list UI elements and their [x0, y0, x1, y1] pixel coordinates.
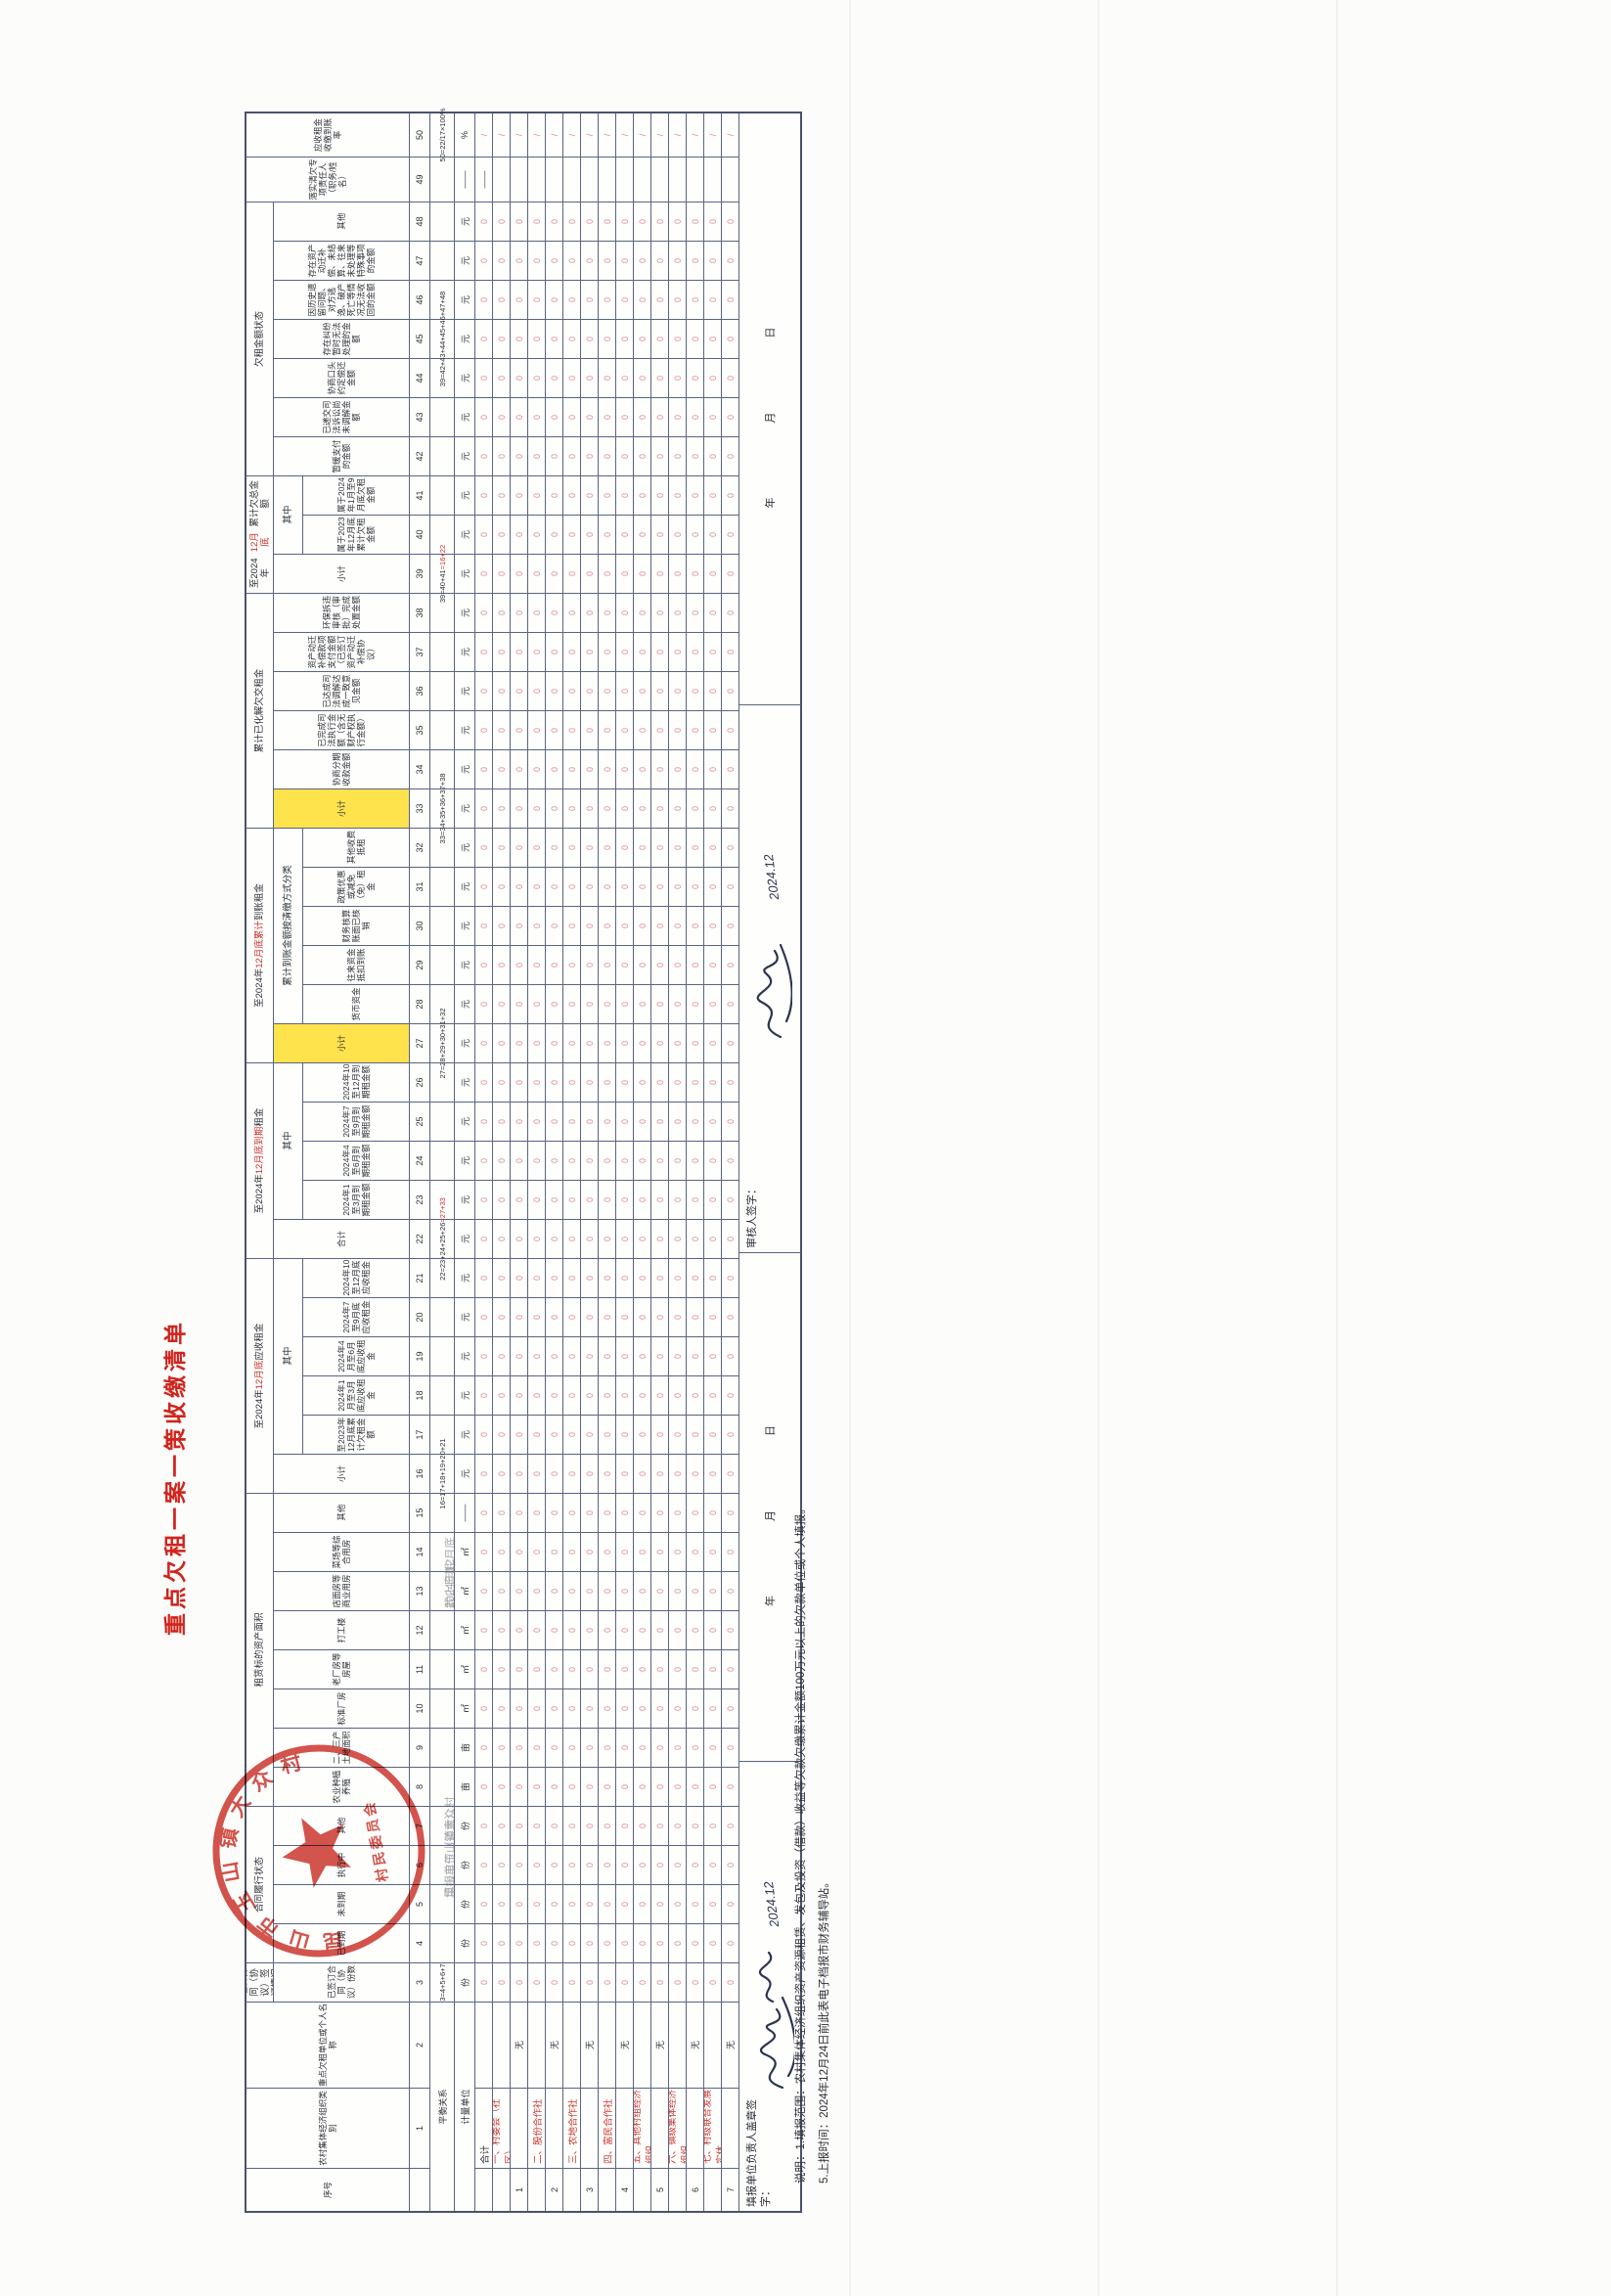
data-cell-49 [687, 157, 703, 202]
data-cell-33: 0 [722, 788, 738, 828]
table-row: 五、其他村组经济组织000000000000000000000000000000… [634, 113, 651, 2211]
data-cell-12: 0 [634, 1610, 650, 1649]
data-cell-33: 0 [493, 788, 510, 828]
data-cell-35: 0 [599, 710, 615, 749]
col-number-18: 18 [410, 1375, 429, 1415]
data-cell-20: 0 [563, 1297, 580, 1336]
col-number-14: 14 [410, 1532, 429, 1571]
formula-cell-14 [430, 1532, 454, 1571]
col-number-27: 27 [410, 1023, 429, 1062]
data-cell-13: 0 [634, 1571, 650, 1610]
col-header-48: 其他 [274, 202, 409, 241]
formula-cell-25 [430, 1102, 454, 1141]
unit-cell-25: 元 [455, 1102, 474, 1141]
data-cell-21: 0 [616, 1258, 633, 1297]
data-cell-42: 0 [511, 436, 527, 475]
data-cell-8: 0 [511, 1767, 527, 1806]
data-cell-37: 0 [581, 632, 598, 671]
data-cell-36: 0 [493, 671, 510, 710]
data-cell-31: 0 [528, 867, 545, 906]
data-cell-36: 0 [599, 671, 615, 710]
data-cell-39: 0 [475, 554, 492, 593]
data-cell-38: 0 [581, 593, 598, 632]
formula-cell-49 [430, 157, 454, 202]
data-cell-34: 0 [563, 749, 580, 788]
data-cell-47: 0 [722, 241, 738, 280]
data-cell-25: 0 [546, 1102, 562, 1141]
col-header-19: 2024年4月至6月底应收租金 [303, 1336, 409, 1375]
data-cell-43: 0 [651, 397, 668, 436]
col-header-25: 2024年7至9月到期租金额 [303, 1102, 409, 1141]
data-cell-3: 0 [651, 1962, 668, 2002]
data-cell-43: 0 [599, 397, 615, 436]
data-cell-4: 0 [599, 1923, 615, 1962]
data-cell-41: 0 [687, 475, 703, 515]
data-cell-19: 0 [493, 1336, 510, 1375]
data-cell-46: 0 [475, 280, 492, 319]
data-cell-23: 0 [651, 1180, 668, 1219]
data-cell-43: 0 [704, 397, 721, 436]
data-cell-21: 0 [704, 1258, 721, 1297]
note-line-1: 说明：1.填报范围：农村集体经济组织资产资源租赁、发包及投资（借款）收益等欠款欠… [792, 1503, 808, 2183]
data-cell-27: 0 [493, 1023, 510, 1062]
col-header-47: 存在资产动迁补偿、未结算、往来未处理等特殊事项的金额 [274, 241, 409, 280]
data-cell-25: 0 [687, 1102, 703, 1141]
data-cell-24: 0 [651, 1141, 668, 1180]
formula-cell-34 [430, 749, 454, 788]
data-cell-7: 0 [493, 1806, 510, 1845]
data-cell-50: / [563, 113, 580, 157]
data-cell-13: 0 [669, 1571, 686, 1610]
data-cell-32: 0 [651, 828, 668, 867]
data-cell-17: 0 [493, 1415, 510, 1454]
data-cell-25: 0 [493, 1102, 510, 1141]
unit-cell-41: 元 [455, 475, 474, 515]
data-cell-29: 0 [563, 945, 580, 984]
data-cell-42: 0 [651, 436, 668, 475]
data-cell-19: 0 [704, 1336, 721, 1375]
data-cell-28: 0 [722, 984, 738, 1023]
data-cell-21: 0 [546, 1258, 562, 1297]
table-row: 三、农地合作社000000000000000000000000000000000… [563, 113, 581, 2211]
col-header-36: 已达成司法调解达成一致意见金额 [274, 671, 409, 710]
data-cell-31: 0 [616, 867, 633, 906]
col-header-sn: 序号 [246, 2168, 409, 2211]
data-cell-7: 0 [634, 1806, 650, 1845]
data-cell-29: 0 [493, 945, 510, 984]
data-cell-14: 0 [493, 1532, 510, 1571]
data-cell-39: 0 [493, 554, 510, 593]
data-cell-47: 0 [563, 241, 580, 280]
data-cell-21: 0 [634, 1258, 650, 1297]
data-cell-50: / [493, 113, 510, 157]
data-cell-47: 0 [528, 241, 545, 280]
col-number-sn [410, 2168, 429, 2211]
col-number-37: 37 [410, 632, 429, 671]
data-cell-32: 0 [581, 828, 598, 867]
row-sn [475, 2168, 492, 2211]
data-cell-36: 0 [511, 671, 527, 710]
data-cell-16: 0 [528, 1454, 545, 1493]
data-cell-27: 0 [511, 1023, 527, 1062]
data-cell-32: 0 [511, 828, 527, 867]
data-cell-5: 0 [528, 1884, 545, 1923]
data-cell-27: 0 [563, 1023, 580, 1062]
formula-cell-27: 27=28+29+30+31+32 [430, 1023, 454, 1062]
data-cell-14: 0 [581, 1532, 598, 1571]
data-cell-21: 0 [581, 1258, 598, 1297]
data-cell-22: 0 [528, 1219, 545, 1258]
data-cell-42: 0 [669, 436, 686, 475]
data-cell-41: 0 [493, 475, 510, 515]
data-cell-5: 0 [599, 1884, 615, 1923]
data-cell-19: 0 [722, 1336, 738, 1375]
data-cell-21: 0 [528, 1258, 545, 1297]
official-seal-stamp: 昆山市玉山镇大众村 村民委员会 [174, 1706, 465, 1997]
data-cell-9: 0 [704, 1728, 721, 1767]
data-cell-8: 0 [669, 1767, 686, 1806]
data-cell-4: 0 [581, 1923, 598, 1962]
data-cell-24: 0 [581, 1141, 598, 1180]
data-cell-22: 0 [634, 1219, 650, 1258]
data-cell-20: 0 [634, 1297, 650, 1336]
data-cell-44: 0 [511, 358, 527, 397]
data-cell-43: 0 [687, 397, 703, 436]
data-cell-19: 0 [616, 1336, 633, 1375]
col-header-23: 2024年1至3月到期租金额 [303, 1180, 409, 1219]
data-cell-3: 0 [704, 1962, 721, 2002]
unit-cell-36: 元 [455, 671, 474, 710]
col-number-31: 31 [410, 867, 429, 906]
data-cell-26: 0 [493, 1062, 510, 1102]
data-cell-28: 0 [528, 984, 545, 1023]
data-cell-4: 0 [528, 1923, 545, 1962]
unit-cell-9: 亩 [455, 1728, 474, 1767]
formula-cell-40 [430, 515, 454, 554]
data-cell-7: 0 [616, 1806, 633, 1845]
data-cell-45: 0 [616, 319, 633, 358]
data-cell-48: 0 [616, 202, 633, 241]
col-number-43: 43 [410, 397, 429, 436]
row-label: 五、其他村组经济组织 [634, 2088, 650, 2168]
data-cell-19: 0 [475, 1336, 492, 1375]
data-cell-10: 0 [704, 1688, 721, 1728]
row-sn [493, 2168, 510, 2211]
col-subgroup-label: 其中 [274, 1062, 303, 1219]
data-cell-24: 0 [475, 1141, 492, 1180]
unit-cell-46: 元 [455, 280, 474, 319]
unit-cell-8: 亩 [455, 1767, 474, 1806]
data-cell-28: 0 [599, 984, 615, 1023]
data-cell-28: 0 [563, 984, 580, 1023]
col-number-3: 3 [410, 1962, 429, 2002]
data-cell-31: 0 [563, 867, 580, 906]
data-cell-43: 0 [669, 397, 686, 436]
col-group-8: 欠租金额状态暂缓支付的金额已递交司法诉讼尚未调解金额协商口头约定偿还金额存在纠纷… [246, 202, 409, 475]
formula-cell-37 [430, 632, 454, 671]
col-number-32: 32 [410, 828, 429, 867]
data-cell-45: 0 [687, 319, 703, 358]
data-cell-26: 0 [581, 1062, 598, 1102]
col-group-label: 至2024年12月底应收租金 [246, 1259, 274, 1493]
data-cell-19: 0 [528, 1336, 545, 1375]
data-cell-11: 0 [722, 1649, 738, 1688]
data-cell-10: 0 [669, 1688, 686, 1728]
data-cell-42: 0 [722, 436, 738, 475]
data-cell-44: 0 [563, 358, 580, 397]
formula-cell-30 [430, 906, 454, 945]
data-cell-46: 0 [634, 280, 650, 319]
data-cell-43: 0 [634, 397, 650, 436]
unit-row: 计量单位份份份份份亩亩㎡㎡㎡㎡㎡——元元元元元元元元元元元元元元元元元元元元元元… [455, 113, 475, 2211]
col-number-15: 15 [410, 1493, 429, 1532]
data-cell-32: 0 [599, 828, 615, 867]
col-subgroup: 累计到账金额按清缴方式分类货币资金往来资金抵扣到账财务核算账面已核销政策优惠或减… [274, 828, 409, 1023]
data-cell-49 [651, 157, 668, 202]
data-cell-12: 0 [599, 1610, 615, 1649]
data-cell-6: 0 [599, 1845, 615, 1884]
col-group-children: 小计其中属于2023年12月底累计欠租金额属于2024年1月至9月底欠租金额 [274, 476, 409, 593]
formula-cell-28 [430, 984, 454, 1023]
data-cell-26: 0 [651, 1062, 668, 1102]
data-cell-41: 0 [563, 475, 580, 515]
data-cell-31: 0 [704, 867, 721, 906]
data-cell-49 [546, 157, 562, 202]
data-cell-36: 0 [687, 671, 703, 710]
unit-cell-24: 元 [455, 1141, 474, 1180]
data-cell-27: 0 [669, 1023, 686, 1062]
data-cell-11: 0 [616, 1649, 633, 1688]
data-cell-20: 0 [616, 1297, 633, 1336]
data-cell-37: 0 [722, 632, 738, 671]
data-cell-45: 0 [528, 319, 545, 358]
data-cell-12: 0 [651, 1610, 668, 1649]
data-cell-4: 0 [563, 1923, 580, 1962]
data-cell-17: 0 [528, 1415, 545, 1454]
data-cell-45: 0 [511, 319, 527, 358]
formula-cell-47 [430, 241, 454, 280]
data-cell-22: 0 [563, 1219, 580, 1258]
data-cell-40: 0 [651, 515, 668, 554]
data-cell-22: 0 [511, 1219, 527, 1258]
col-subgroup: 其中2024年1至3月到期租金额2024年4至6月到期租金额2024年7至9月到… [274, 1062, 409, 1219]
formula-cell-9 [430, 1728, 454, 1767]
data-cell-13: 0 [599, 1571, 615, 1610]
col-number-40: 40 [410, 515, 429, 554]
col-group-label: 累计已化解欠交租金 [246, 594, 274, 828]
data-cell-34: 0 [634, 749, 650, 788]
data-cell-25: 0 [528, 1102, 545, 1141]
data-cell-17: 0 [669, 1415, 686, 1454]
data-cell-38: 0 [546, 593, 562, 632]
data-cell-15: 0 [651, 1493, 668, 1532]
data-cell-29: 0 [687, 945, 703, 984]
row-label: 七、村级联合发展实体 [704, 2088, 721, 2168]
data-cell-36: 0 [581, 671, 598, 710]
row-label [722, 2088, 738, 2168]
data-cell-30: 0 [669, 906, 686, 945]
data-cell-16: 0 [493, 1454, 510, 1493]
table-row: 一、村委会（社区）0000000000000000000000000000000… [493, 113, 511, 2211]
data-cell-43: 0 [563, 397, 580, 436]
data-cell-23: 0 [511, 1180, 527, 1219]
row-sn [528, 2168, 545, 2211]
data-cell-40: 0 [722, 515, 738, 554]
data-cell-11: 0 [493, 1649, 510, 1688]
data-cell-33: 0 [475, 788, 492, 828]
data-cell-11: 0 [581, 1649, 598, 1688]
unit-row-label: 计量单位 [455, 2002, 474, 2211]
data-cell-23: 0 [581, 1180, 598, 1219]
data-cell-38: 0 [616, 593, 633, 632]
data-cell-11: 0 [511, 1649, 527, 1688]
col-group-7: 至2024年12月底累计欠总金额小计其中属于2023年12月底累计欠租金额属于2… [246, 475, 409, 593]
data-cell-14: 0 [599, 1532, 615, 1571]
row-name [704, 2002, 721, 2088]
data-cell-40: 0 [493, 515, 510, 554]
data-cell-6: 0 [493, 1845, 510, 1884]
data-cell-44: 0 [704, 358, 721, 397]
col-group-children: 小计其中至2023年12月底累计欠租金额2024年1月至3月底应收租金2024年… [274, 1259, 409, 1493]
data-cell-23: 0 [687, 1180, 703, 1219]
data-cell-42: 0 [616, 436, 633, 475]
data-cell-42: 0 [493, 436, 510, 475]
data-cell-35: 0 [651, 710, 668, 749]
data-cell-45: 0 [599, 319, 615, 358]
data-cell-48: 0 [475, 202, 492, 241]
data-cell-49 [634, 157, 650, 202]
data-cell-24: 0 [616, 1141, 633, 1180]
unit-cell-22: 元 [455, 1219, 474, 1258]
data-cell-35: 0 [475, 710, 492, 749]
data-cell-16: 0 [687, 1454, 703, 1493]
data-cell-12: 0 [563, 1610, 580, 1649]
unit-cell-37: 元 [455, 632, 474, 671]
row-name: 无 [511, 2002, 527, 2088]
col-group-children: 小计协商分期收款金额已完成司法执行金额（含无财产权执行金额）已达成司法调解达成一… [274, 594, 409, 828]
col-number-35: 35 [410, 710, 429, 749]
data-cell-48: 0 [704, 202, 721, 241]
data-cell-45: 0 [493, 319, 510, 358]
unit-cell-12: ㎡ [455, 1610, 474, 1649]
unit-cell-30: 元 [455, 906, 474, 945]
col-header-31: 政策优惠或减免（免）租金 [303, 867, 409, 906]
data-cell-3: 0 [546, 1962, 562, 2002]
col-header-11: 老厂房等房屋 [274, 1649, 409, 1688]
data-cell-42: 0 [546, 436, 562, 475]
data-cell-12: 0 [669, 1610, 686, 1649]
unit-cell-18: 元 [455, 1375, 474, 1415]
data-cell-34: 0 [581, 749, 598, 788]
data-cell-28: 0 [511, 984, 527, 1023]
data-cell-4: 0 [634, 1923, 650, 1962]
data-cell-50: / [511, 113, 527, 157]
col-header-20: 2024年7至9月底应收租金 [303, 1297, 409, 1336]
data-cell-22: 0 [704, 1219, 721, 1258]
row-label: 二、股份合作社 [528, 2088, 545, 2168]
formula-cell-22: 22=23+24+25+26=27+33 [430, 1219, 454, 1258]
data-cell-13: 0 [722, 1571, 738, 1610]
row-label [581, 2088, 598, 2168]
data-cell-29: 0 [669, 945, 686, 984]
col-header-35: 已完成司法执行金额（含无财产权执行金额） [274, 710, 409, 749]
data-cell-5: 0 [669, 1884, 686, 1923]
unit-cell-31: 元 [455, 867, 474, 906]
row-name: 无 [546, 2002, 562, 2088]
data-cell-46: 0 [581, 280, 598, 319]
data-cell-16: 0 [475, 1454, 492, 1493]
data-cell-4: 0 [493, 1923, 510, 1962]
data-cell-33: 0 [528, 788, 545, 828]
row-name: 无 [651, 2002, 668, 2088]
data-cell-26: 0 [669, 1062, 686, 1102]
data-cell-36: 0 [722, 671, 738, 710]
formula-cell-42 [430, 436, 454, 475]
data-cell-10: 0 [687, 1688, 703, 1728]
data-cell-34: 0 [687, 749, 703, 788]
data-cell-16: 0 [546, 1454, 562, 1493]
signature-cell: 审核人签字：2024.12 [739, 704, 800, 1252]
data-cell-37: 0 [546, 632, 562, 671]
data-cell-36: 0 [528, 671, 545, 710]
data-cell-43: 0 [546, 397, 562, 436]
col-number-cat: 1 [410, 2088, 429, 2168]
data-cell-29: 0 [599, 945, 615, 984]
unit-cell-17: 元 [455, 1415, 474, 1454]
col-group-6: 累计已化解欠交租金小计协商分期收款金额已完成司法执行金额（含无财产权执行金额）已… [246, 593, 409, 828]
data-cell-32: 0 [616, 828, 633, 867]
data-cell-48: 0 [651, 202, 668, 241]
data-cell-19: 0 [634, 1336, 650, 1375]
data-cell-48: 0 [546, 202, 562, 241]
col-header-28: 货币资金 [303, 984, 409, 1023]
data-cell-37: 0 [704, 632, 721, 671]
data-cell-49 [669, 157, 686, 202]
col-group-4: 至2024年12月底到期租金合计其中2024年1至3月到期租金额2024年4至6… [246, 1062, 409, 1258]
data-cell-35: 0 [687, 710, 703, 749]
row-label: 合计 [475, 2088, 492, 2168]
data-cell-41: 0 [511, 475, 527, 515]
data-cell-25: 0 [616, 1102, 633, 1141]
data-cell-15: 0 [563, 1493, 580, 1532]
col-subgroup: 其中属于2023年12月底累计欠租金额属于2024年1月至9月底欠租金额 [274, 475, 409, 554]
data-cell-46: 0 [722, 280, 738, 319]
data-cell-13: 0 [687, 1571, 703, 1610]
data-cell-20: 0 [475, 1297, 492, 1336]
col-group-5: 至2024年12月底累计到账租金小计累计到账金额按清缴方式分类货币资金往来资金抵… [246, 828, 409, 1062]
data-cell-27: 0 [599, 1023, 615, 1062]
data-cell-19: 0 [546, 1336, 562, 1375]
data-cell-17: 0 [687, 1415, 703, 1454]
data-cell-43: 0 [528, 397, 545, 436]
data-cell-4: 0 [511, 1923, 527, 1962]
data-cell-4: 0 [669, 1923, 686, 1962]
row-name [528, 2002, 545, 2088]
row-label [651, 2088, 668, 2168]
formula-cell-24 [430, 1141, 454, 1180]
data-cell-9: 0 [722, 1728, 738, 1767]
data-cell-39: 0 [669, 554, 686, 593]
data-cell-8: 0 [634, 1767, 650, 1806]
data-cell-18: 0 [704, 1375, 721, 1415]
formula-cell-23 [430, 1180, 454, 1219]
data-cell-14: 0 [475, 1532, 492, 1571]
data-cell-24: 0 [722, 1141, 738, 1180]
data-cell-45: 0 [546, 319, 562, 358]
data-cell-23: 0 [669, 1180, 686, 1219]
data-cell-15: 0 [528, 1493, 545, 1532]
data-cell-17: 0 [634, 1415, 650, 1454]
